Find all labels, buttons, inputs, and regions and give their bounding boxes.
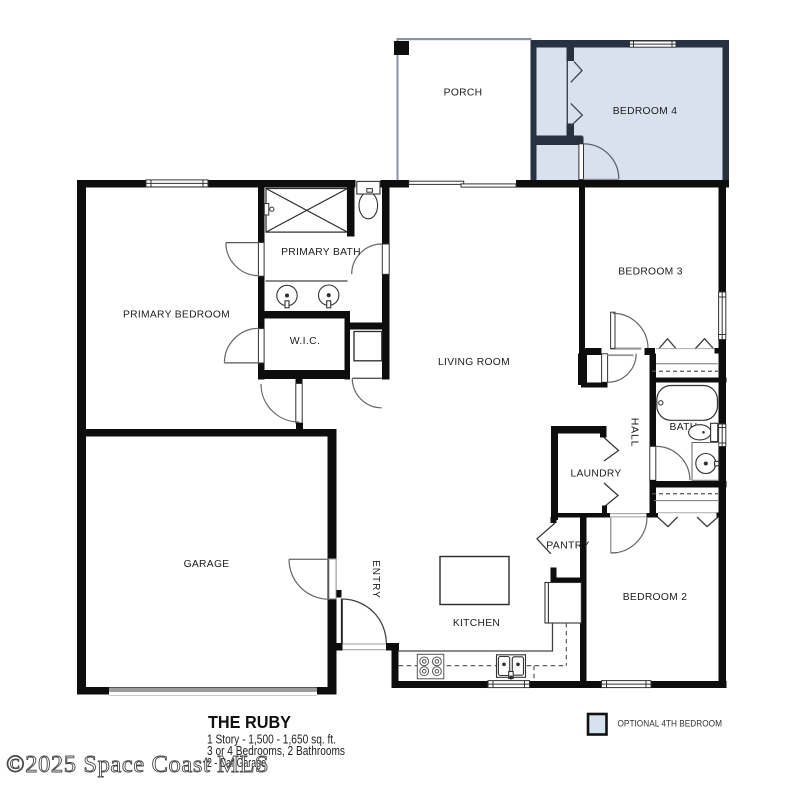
svg-text:LAUNDRY: LAUNDRY bbox=[570, 469, 621, 480]
svg-text:OPTIONAL 4TH BEDROOM: OPTIONAL 4TH BEDROOM bbox=[618, 719, 723, 729]
svg-text:W.I.C.: W.I.C. bbox=[290, 335, 320, 347]
svg-text:PRIMARY BEDROOM: PRIMARY BEDROOM bbox=[123, 310, 230, 321]
svg-text:PANTRY: PANTRY bbox=[546, 540, 589, 552]
svg-text:GARAGE: GARAGE bbox=[184, 559, 230, 570]
svg-text:PORCH: PORCH bbox=[444, 88, 483, 99]
svg-text:BEDROOM 4: BEDROOM 4 bbox=[613, 106, 678, 117]
svg-text:HALL: HALL bbox=[629, 418, 641, 447]
svg-text:ENTRY: ENTRY bbox=[370, 560, 381, 599]
svg-text:BEDROOM 3: BEDROOM 3 bbox=[618, 266, 683, 277]
svg-text:LIVING ROOM: LIVING ROOM bbox=[438, 357, 510, 368]
svg-text:THE RUBY: THE RUBY bbox=[208, 712, 291, 732]
svg-text:BEDROOM 2: BEDROOM 2 bbox=[623, 592, 688, 603]
svg-text:PRIMARY BATH: PRIMARY BATH bbox=[281, 247, 361, 258]
svg-text:KITCHEN: KITCHEN bbox=[453, 618, 500, 629]
